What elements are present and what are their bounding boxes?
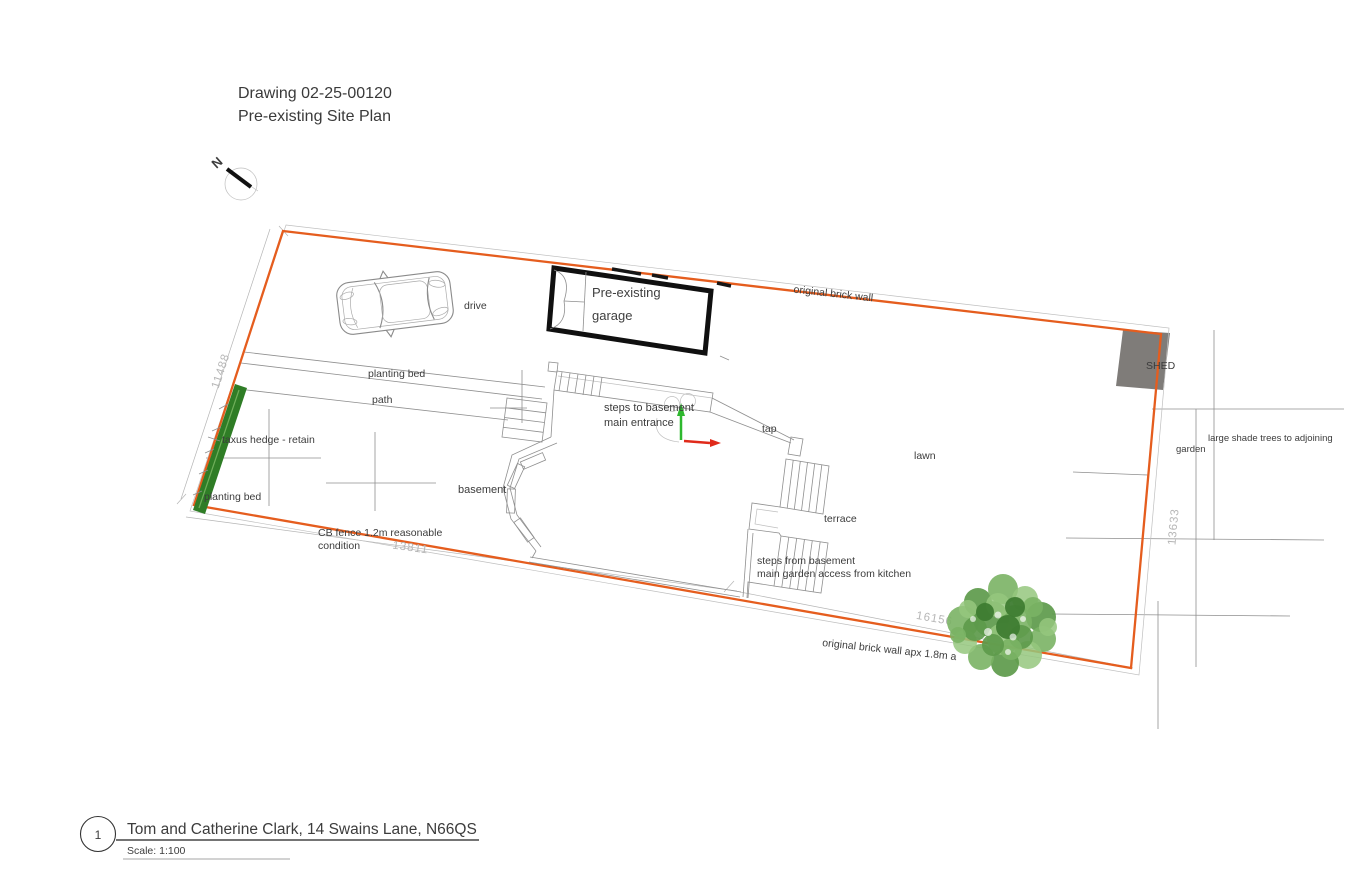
- stairs-path: [502, 398, 547, 442]
- garage-corner-tick: [720, 356, 729, 360]
- label-garage-1: Pre-existing: [592, 285, 661, 300]
- label-steps-to-basement-2: main entrance: [604, 417, 674, 429]
- label-steps-to-basement-1: steps to basement: [604, 402, 694, 414]
- label-steps-from-basement-2: main garden access from kitchen: [757, 568, 911, 580]
- title-block: 1 Tom and Catherine Clark, 14 Swains Lan…: [81, 817, 480, 860]
- project-title: Tom and Catherine Clark, 14 Swains Lane,…: [127, 821, 477, 838]
- label-tap: tap: [762, 423, 777, 435]
- label-steps-from-basement-1: steps from basement: [757, 555, 855, 567]
- label-terrace: terrace: [824, 513, 857, 525]
- garage: Pre-existing garage: [549, 268, 711, 353]
- car: [334, 263, 455, 342]
- dimension-right: 13633: [1166, 508, 1181, 546]
- site-plan-canvas: Drawing 02-25-00120 Pre-existing Site Pl…: [0, 0, 1362, 874]
- label-garage-2: garage: [592, 308, 632, 323]
- label-planting-bed-lower: planting bed: [204, 491, 261, 503]
- drawing-number: Drawing 02-25-00120: [238, 85, 392, 102]
- bay-window-outer: [503, 437, 551, 551]
- sheet-number: 1: [95, 828, 102, 842]
- scale-text: Scale: 1:100: [127, 845, 186, 857]
- bay-window-inner: [510, 443, 557, 547]
- label-shed: SHED: [1146, 360, 1176, 372]
- label-adjoining-trees-2: garden: [1176, 444, 1206, 455]
- label-adjoining-trees-1: large shade trees to adjoining: [1208, 433, 1333, 444]
- label-planting-bed-upper: planting bed: [368, 368, 425, 380]
- dimension-left: 11488: [210, 352, 233, 390]
- wall-pier: [788, 437, 803, 456]
- label-lawn: lawn: [914, 450, 936, 462]
- label-brick-wall-top: original brick wall: [793, 284, 874, 305]
- label-path: path: [372, 394, 393, 406]
- stairs-terrace: [780, 459, 829, 514]
- label-brick-wall-bottom: original brick wall apx 1.8m a: [822, 637, 957, 663]
- drawing-title: Pre-existing Site Plan: [238, 108, 391, 125]
- tree: [947, 574, 1057, 677]
- label-drive: drive: [464, 300, 487, 312]
- adjoining-garden-lines: [1052, 330, 1344, 729]
- label-cb-fence-2: condition: [318, 540, 360, 552]
- path-and-bed-lines: [238, 352, 545, 420]
- north-label: N: [208, 154, 225, 171]
- label-cb-fence-1: CB fence 1.2m reasonable: [318, 527, 442, 539]
- label-basement: basement: [458, 484, 506, 496]
- stairs-entrance: [559, 372, 602, 397]
- label-taxus-hedge: taxus hedge - retain: [222, 434, 315, 446]
- dimension-bottom-left: 13811: [392, 540, 429, 557]
- north-arrow: N: [208, 154, 258, 200]
